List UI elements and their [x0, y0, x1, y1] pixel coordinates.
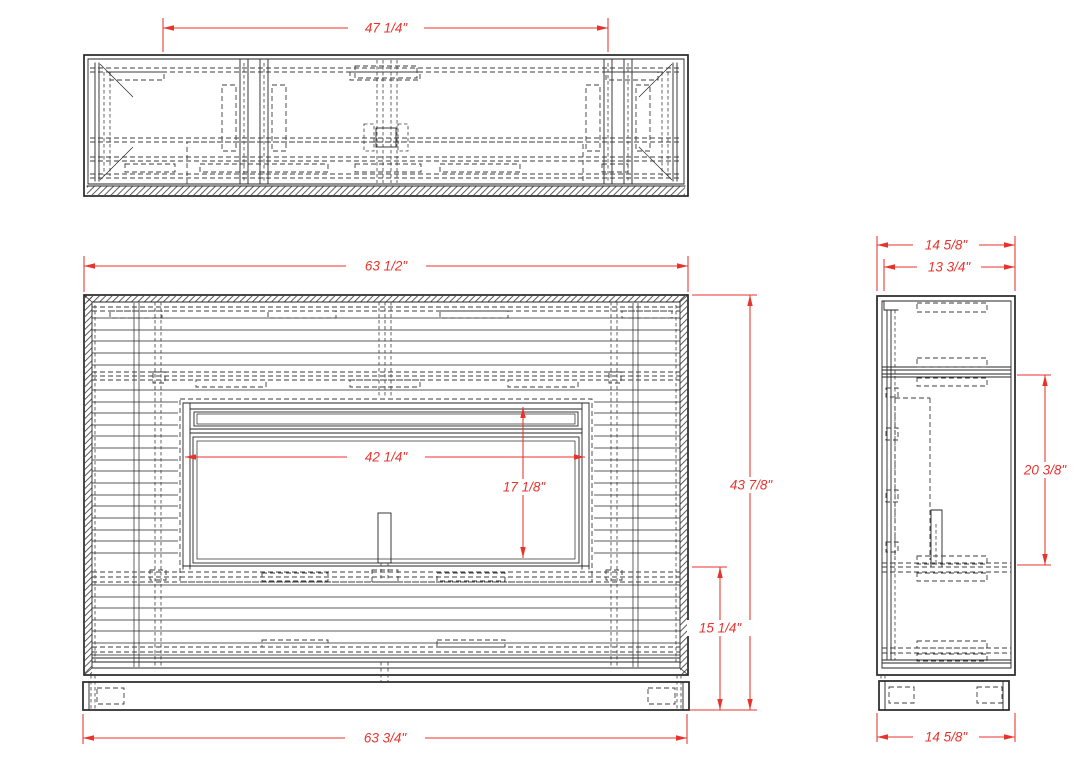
dim-label-hearth-height: 15 1/4": [699, 621, 743, 636]
dim-inner-depth: 13 3/4": [884, 259, 1015, 291]
dim-hearth-height: 15 1/4": [687, 567, 753, 710]
shop-drawing: 47 1/4" 63 1/2" 42 1/4" 17 1/8" 43 7/8": [0, 0, 1090, 770]
dim-side-upper-height: 20 3/8": [1017, 375, 1071, 565]
dim-top-opening-width: 47 1/4": [163, 18, 608, 52]
dim-depth-bottom: 14 5/8": [877, 713, 1015, 745]
top-view: [84, 55, 688, 196]
dim-label-top-opening-width: 47 1/4": [365, 21, 409, 36]
dim-base-width: 63 3/4": [83, 714, 687, 746]
dim-label-base-width: 63 3/4": [364, 731, 408, 746]
front-left-edge-hatch: [84, 295, 92, 675]
front-top-edge-hatch: [84, 295, 688, 302]
dim-label-side-upper-height: 20 3/8": [1023, 463, 1068, 478]
dim-label-insert-height: 17 1/8": [503, 480, 547, 495]
dim-label-front-width: 63 1/2": [365, 259, 409, 274]
top-view-front-edge-hatch: [87, 186, 685, 195]
dim-label-insert-width: 42 1/4": [365, 450, 409, 465]
drawing-sheet: 47 1/4" 63 1/2" 42 1/4" 17 1/8" 43 7/8": [0, 0, 1090, 770]
center-support: [355, 60, 417, 183]
side-shelf: [882, 358, 1011, 386]
front-right-edge-hatch: [680, 295, 688, 675]
dim-label-overall-height: 43 7/8": [730, 478, 774, 493]
dim-label-inner-depth: 13 3/4": [928, 260, 972, 275]
front-base: [83, 662, 689, 710]
dim-front-width: 63 1/2": [84, 256, 688, 292]
side-view: [877, 296, 1015, 710]
front-view: [83, 295, 689, 710]
side-base: [879, 675, 1009, 710]
side-center-post: [931, 510, 942, 567]
dimensions: 47 1/4" 63 1/2" 42 1/4" 17 1/8" 43 7/8": [83, 18, 1071, 746]
dim-label-depth-bottom: 14 5/8": [925, 730, 969, 745]
dim-overall-height: 43 7/8": [690, 295, 788, 710]
insert-side-profile: [895, 398, 930, 560]
dim-label-depth-top: 14 5/8": [925, 238, 969, 253]
